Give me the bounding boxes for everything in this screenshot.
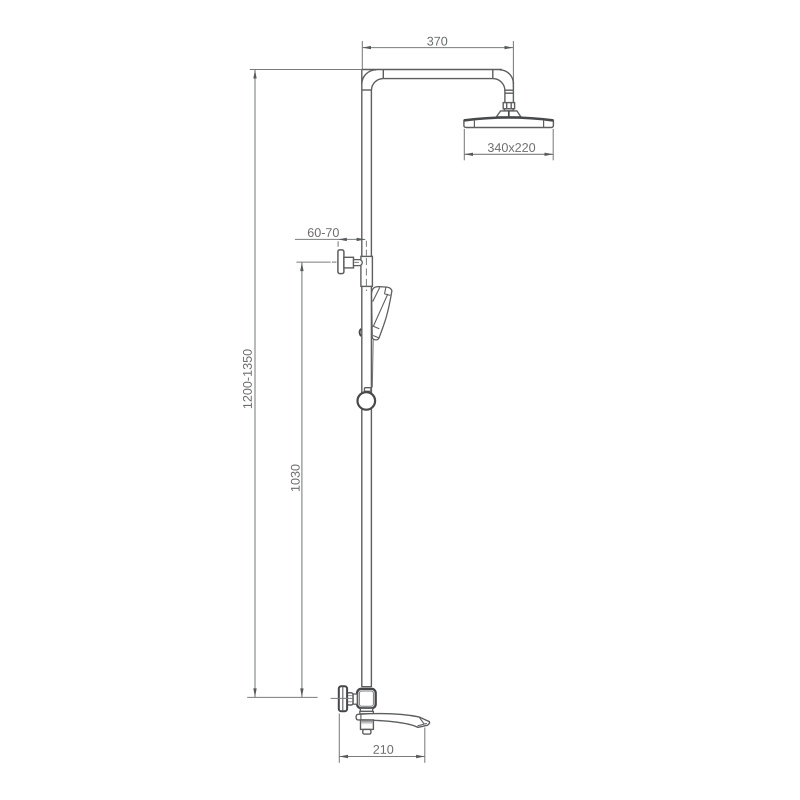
- svg-text:1030: 1030: [289, 464, 303, 492]
- svg-text:60-70: 60-70: [307, 226, 339, 240]
- svg-text:340x220: 340x220: [487, 141, 535, 155]
- svg-text:1200-1350: 1200-1350: [241, 349, 255, 409]
- svg-text:370: 370: [427, 34, 448, 48]
- svg-text:210: 210: [373, 743, 394, 757]
